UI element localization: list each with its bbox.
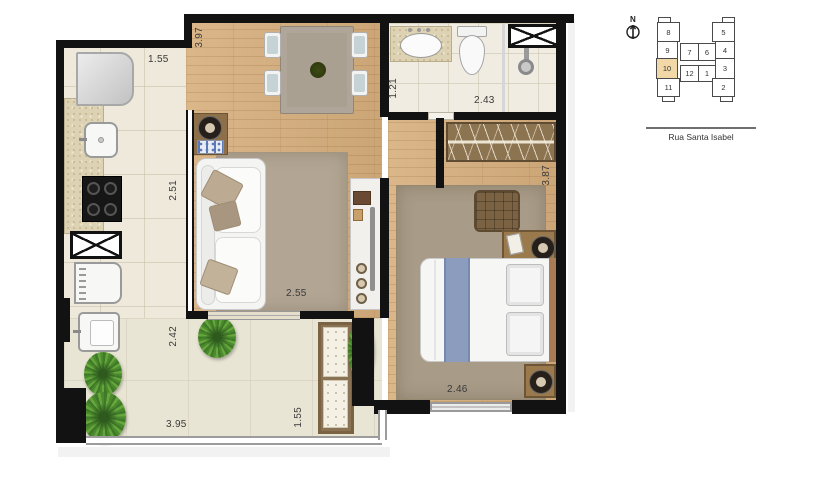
kitchen-sink [84,122,118,158]
unit-cell-7: 7 [680,43,699,61]
picture-frame-icon [353,209,363,221]
unit-cell-10-highlighted: 10 [656,58,678,79]
toilet [456,26,490,80]
balcony-railing [86,436,382,445]
wall-living-bedroom [380,178,389,318]
book-icon [506,233,524,255]
centerpiece-plant-icon [310,62,326,78]
dim-living-length: 3.97 [194,27,205,48]
dim-bedroom-depth: 3.87 [541,165,552,186]
plant [82,392,126,442]
dim-service-depth: 2.42 [168,326,179,347]
dim-bath-depth: 1.21 [388,78,399,99]
fridge [76,52,134,106]
burner-icon [87,203,100,216]
north-arrow-icon [625,24,641,40]
headboard [549,258,556,362]
dim-terrace-width: 3.95 [166,419,187,430]
unit-cell-6: 6 [698,43,716,61]
dining-chair [264,32,281,58]
faucet-icon [79,138,87,141]
dining-chair [351,32,368,58]
burner-icon [87,182,100,195]
balcony-railing-side [378,410,387,440]
tv-rack [350,178,382,310]
dim-terrace-depth: 1.55 [293,407,304,428]
tv-icon [370,207,375,291]
dining-chair [351,70,368,96]
apartment-floorplan: 1.55 3.97 1.21 2.43 2.51 2.55 2.42 3.87 … [0,0,600,500]
bench-cushion-icon [323,380,348,428]
toilet-bowl-icon [459,35,485,75]
wall-balcony-a [186,311,208,319]
bed-fold-line [434,260,436,360]
burner-icon [104,203,117,216]
plant [198,316,236,358]
sofa [196,158,266,310]
decor-object-icon [356,278,367,289]
bedside-lamp-icon [532,237,554,259]
bench-cushion-icon [323,327,348,377]
unit-cell-5: 5 [712,22,735,42]
bedroom-window [430,402,512,412]
faucet-icon [73,330,81,333]
dining-chair [264,70,281,96]
wall-dining-bath [380,23,389,117]
tub-basin-icon [90,320,114,346]
dim-kitchen-width: 1.55 [148,54,169,65]
unit-cell-2: 2 [712,78,735,97]
balcony-sliding-door [208,311,300,320]
unit-cell-8: 8 [657,22,680,42]
decor-object-icon [356,263,367,274]
cooktop [82,176,122,222]
dining-table [280,26,354,114]
duct-shaft-icon [70,231,122,259]
unit-cell-4: 4 [715,41,735,59]
side-table [192,113,228,155]
floorplan-page: 1.55 3.97 1.21 2.43 2.51 2.55 2.42 3.87 … [0,0,840,500]
laundry-tub [78,312,120,352]
wall-bedroom-bottom-right [512,400,566,414]
wall-balcony-b [300,311,354,319]
bed-pillow-icon [506,264,544,306]
wall-hall-wardrobe [436,118,444,188]
unit-cell-3: 3 [715,58,735,79]
decor-box-icon [353,191,371,205]
dim-bedroom-width: 2.46 [447,384,468,395]
wall-right [556,14,566,414]
wall-top [184,14,574,23]
duct-shaft-icon [508,24,560,48]
wall-bath-bedroom [454,112,556,120]
wardrobe [446,122,556,162]
wall-corner-pillar [56,388,86,443]
drain-icon [98,137,104,143]
unit-cell-9: 9 [657,41,678,59]
bed-runner [444,258,470,362]
street-line [646,127,756,129]
unit-cell-12: 12 [680,65,699,82]
plant [84,352,122,396]
wall-left-pier [56,298,70,342]
washing-machine [74,262,122,304]
dim-kitchen-depth: 2.51 [168,180,179,201]
nightstand [524,364,556,398]
washer-controls-icon [79,268,86,302]
bed-pillow-icon [506,312,544,356]
faucet-dots-icon [408,28,412,32]
pouf [474,190,520,232]
street-label: Rua Santa Isabel [640,132,762,142]
drop-shadow [58,447,390,457]
stereo-icon [197,140,224,154]
bathroom-sink [400,33,442,58]
building-keyplan: N 8 5 9 7 6 4 10 12 1 3 11 2 Rua Santa I… [600,0,840,200]
table-lamp-icon [199,117,221,139]
bedside-lamp-icon [530,371,552,393]
burner-icon [104,182,117,195]
wall-kitchen-top [56,40,190,48]
drop-shadow [568,20,575,412]
north-label: N [630,15,636,24]
wall-bath-bottom [388,112,428,120]
shower-head-icon [518,59,534,75]
wall-kitchen-divider [186,110,194,312]
dim-bath-width: 2.43 [474,95,495,106]
wall-balcony-bedroom [352,318,374,406]
shower-glass [502,24,505,112]
dim-living-width: 2.55 [286,288,307,299]
unit-cell-11: 11 [657,78,680,97]
decor-object-icon [356,293,367,304]
bathroom-counter [390,26,452,62]
